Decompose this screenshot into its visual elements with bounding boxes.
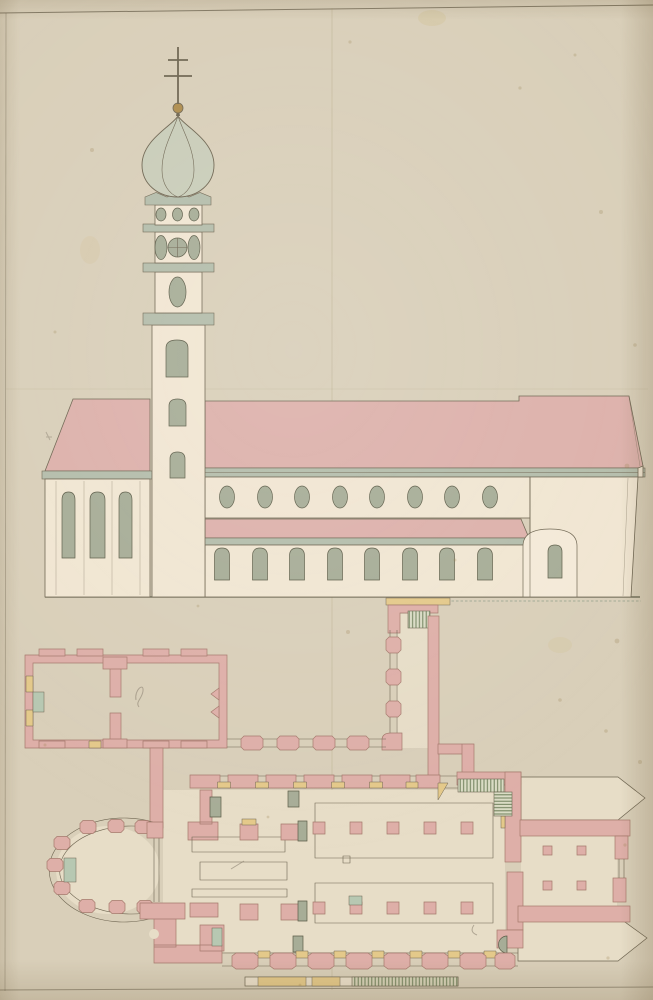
choir-elevation — [523, 466, 643, 597]
crossing-opening-yellow — [501, 816, 505, 828]
wing-colonnade-piers — [386, 637, 401, 717]
patriarchal-cross — [164, 47, 192, 104]
aisle-cornice — [202, 538, 532, 545]
aisle-roof — [205, 519, 529, 538]
west-link-wall — [150, 748, 163, 828]
choir-south-wall — [518, 906, 630, 922]
tower-cornice-2 — [143, 263, 214, 272]
drawing-sheet — [0, 0, 653, 1000]
tower-flare-cornice — [143, 313, 214, 325]
choir-east-pier-north — [615, 836, 628, 859]
northeast-pointed-chapel — [521, 777, 645, 820]
sheet-top-edge — [0, 5, 653, 13]
stain-blotch-top — [418, 10, 446, 26]
west-wing-elevation — [42, 399, 153, 597]
clerestory-wall — [205, 477, 530, 518]
spire-orb — [173, 103, 183, 113]
crossing-west-wall-north — [505, 772, 521, 862]
west-wing-cornice — [42, 471, 153, 479]
tower-plan-notch — [149, 929, 159, 939]
scale-bar-hatched-part — [352, 977, 458, 986]
choir-east-neck-lines — [619, 859, 624, 878]
room-east-niches — [211, 688, 219, 718]
north-wing-plan — [382, 598, 474, 776]
wing-stairs-hatch — [408, 611, 430, 628]
northwest-room-plan — [25, 649, 227, 748]
west-wing-roof — [45, 399, 150, 471]
west-wing-arched-windows — [62, 492, 132, 558]
choir-east-pier-south — [613, 878, 626, 902]
stain-blotch-left — [80, 236, 100, 264]
nave-roof — [205, 396, 643, 468]
architectural-drawing — [0, 0, 653, 1000]
tower-elevation — [142, 47, 214, 597]
apse-north-corner-pier — [147, 822, 163, 838]
pencil-mark-elevation — [46, 432, 52, 440]
choir-niche-window — [548, 545, 562, 578]
pencil-mark-room — [136, 687, 143, 707]
tower-plan-green — [212, 928, 222, 946]
stairs-east-hatch — [494, 792, 512, 816]
pier-cap-yellow — [242, 819, 256, 825]
onion-dome — [142, 116, 214, 197]
pier-cap-green — [349, 896, 362, 905]
wing-threshold-band — [386, 598, 450, 605]
choir-interior — [521, 836, 617, 906]
southeast-pointed-chapel — [518, 917, 647, 961]
wing-east-wall — [428, 616, 439, 776]
choir-north-wall — [520, 820, 630, 836]
cloister-colonnade — [227, 736, 386, 750]
scale-bar — [245, 977, 458, 986]
stairs-north-hatch — [458, 779, 504, 792]
apse-altar-green — [64, 858, 76, 882]
room-t-piers — [103, 657, 127, 748]
wing-south-connector — [438, 744, 474, 776]
sheet-left-edge — [5, 13, 6, 991]
room-altar-green — [33, 692, 44, 712]
wing-corner-pier — [382, 733, 402, 750]
elevation-view — [42, 47, 645, 601]
cloister-piers — [241, 736, 369, 750]
south-colonnade-plan — [222, 951, 518, 969]
ground-plan-view — [25, 598, 647, 986]
stain-blotch-right — [548, 637, 572, 653]
sheet-bottom-edge — [0, 987, 653, 990]
